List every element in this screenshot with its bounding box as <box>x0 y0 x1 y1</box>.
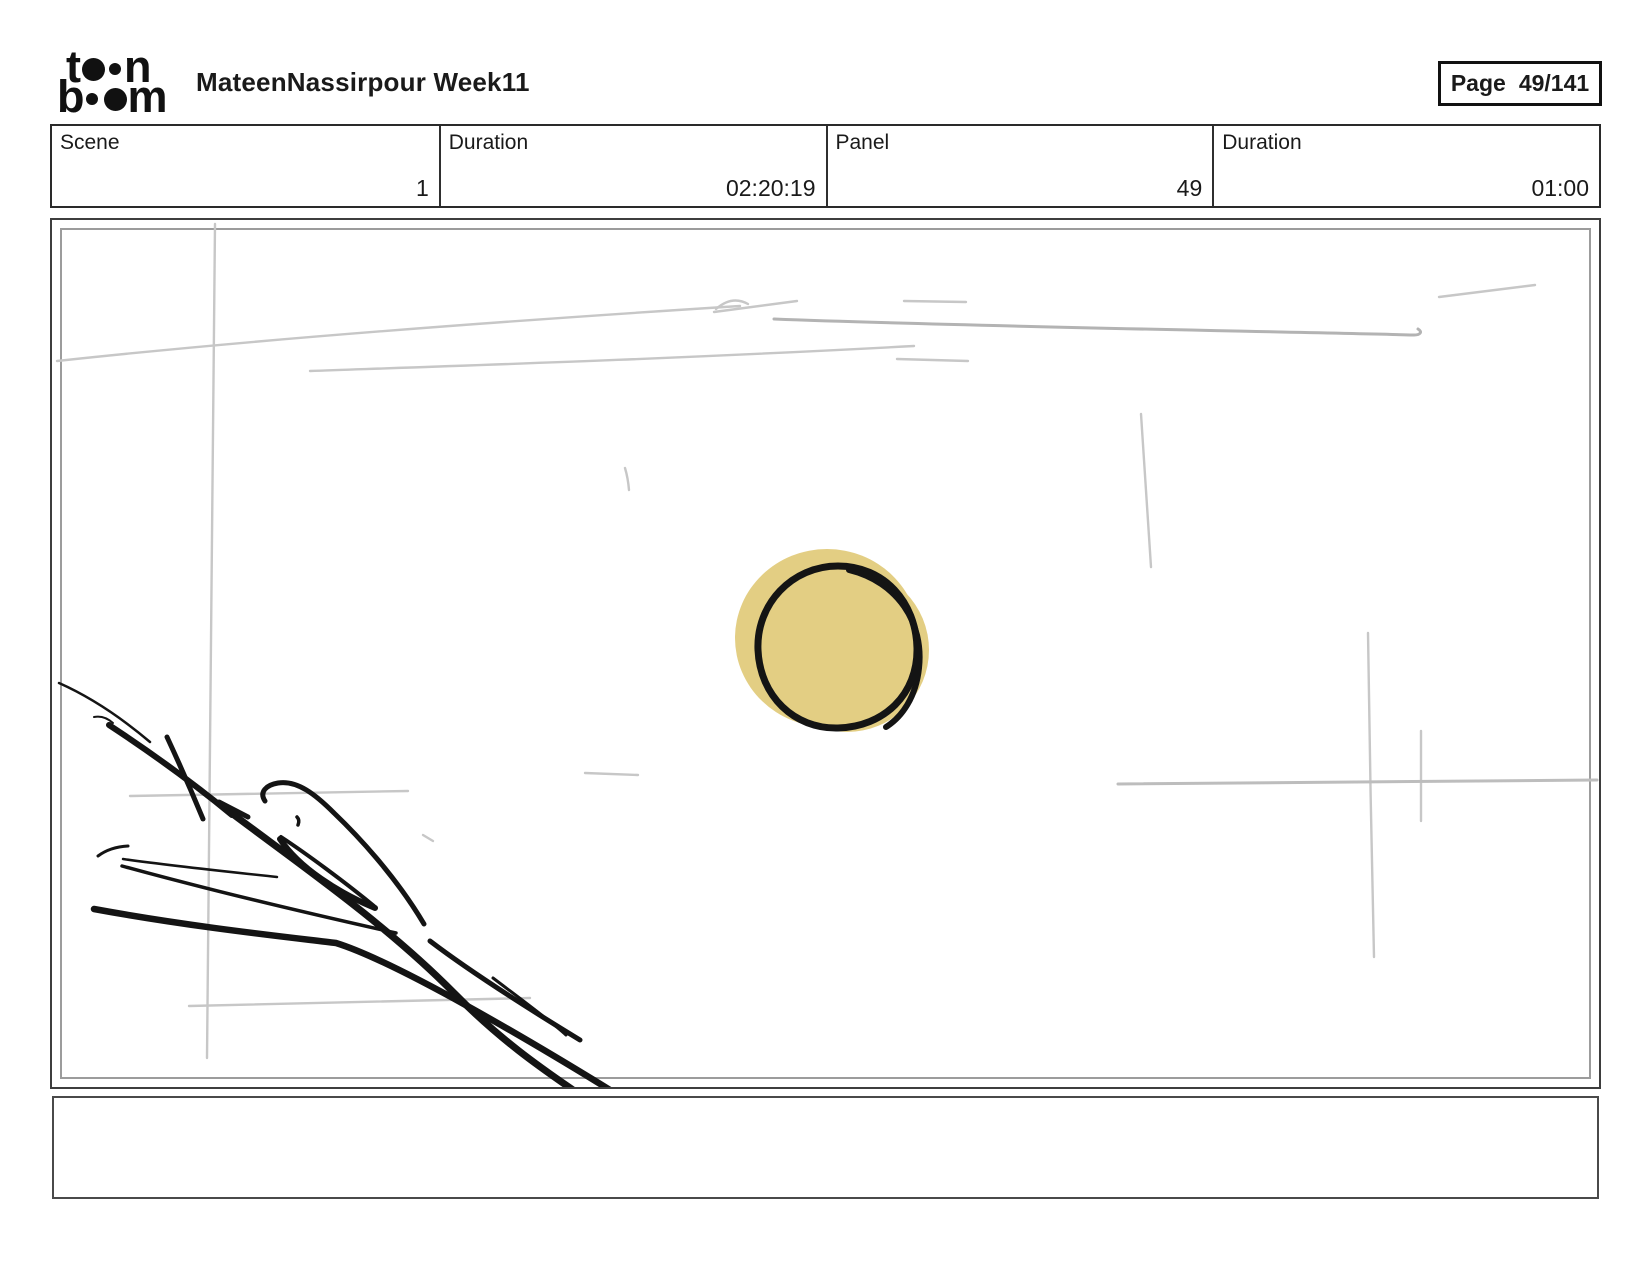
logo-dot-large-icon <box>82 58 105 81</box>
caption-box <box>52 1096 1599 1199</box>
project-title: MateenNassirpour Week11 <box>196 67 530 98</box>
panel-cell: Panel 49 <box>826 126 1213 206</box>
sun-sketch <box>735 549 929 732</box>
logo-letter: b <box>57 82 83 111</box>
panel-duration-value: 01:00 <box>1531 175 1589 202</box>
logo-dot-small-icon <box>109 63 121 75</box>
logo-letter: m <box>128 82 166 111</box>
panel-value: 49 <box>1177 175 1203 202</box>
scene-duration-cell: Duration 02:20:19 <box>439 126 826 206</box>
page-value: 49/141 <box>1519 70 1589 97</box>
panel-duration-label: Duration <box>1222 131 1301 155</box>
logo-row-boom: b m <box>57 80 166 111</box>
logo-dot-large-icon <box>104 88 127 111</box>
bird-sketch <box>59 683 610 1087</box>
storyboard-sketch <box>52 220 1599 1087</box>
storyboard-panel-frame <box>50 218 1601 1089</box>
toonboom-logo: t n b m <box>57 50 166 111</box>
scene-value: 1 <box>416 175 429 202</box>
scene-label: Scene <box>60 131 120 155</box>
scene-cell: Scene 1 <box>52 126 439 206</box>
scene-duration-label: Duration <box>449 131 528 155</box>
panel-label: Panel <box>836 131 890 155</box>
metadata-table: Scene 1 Duration 02:20:19 Panel 49 Durat… <box>50 124 1601 208</box>
page-label: Page <box>1451 70 1506 97</box>
scene-duration-value: 02:20:19 <box>726 175 816 202</box>
page-number-box: Page 49/141 <box>1438 61 1602 106</box>
logo-dot-small-icon <box>86 93 98 105</box>
panel-duration-cell: Duration 01:00 <box>1212 126 1599 206</box>
